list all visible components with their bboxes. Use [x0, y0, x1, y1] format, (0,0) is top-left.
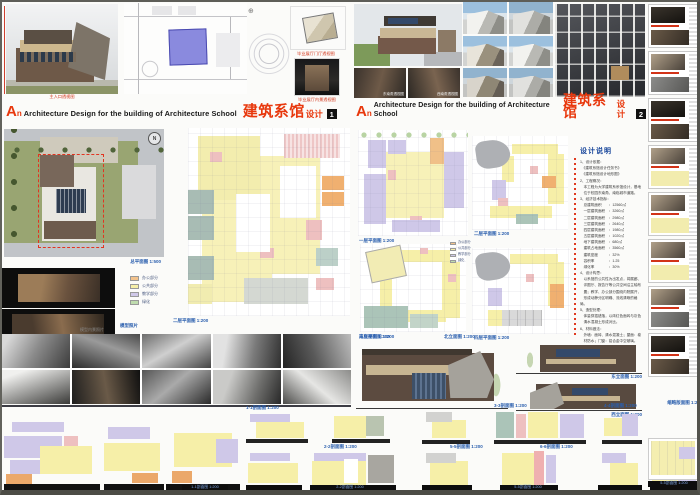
legend-row: 绿化 — [130, 298, 158, 306]
plan-c-caption: 二层平面图 1:200 — [474, 232, 509, 237]
mini-board-thumb — [648, 98, 700, 142]
legend-swatch — [450, 254, 456, 257]
section-caption: 1-1剖面图 1:200 — [246, 406, 279, 411]
legend-label: 公共部分 — [458, 247, 471, 250]
entrance-hall-axon-thumb — [290, 6, 346, 50]
bw-photo — [283, 334, 351, 368]
fragment-label-text: 5-5剖面图 1:200 — [660, 482, 687, 486]
elevation-drawing-south — [356, 343, 508, 409]
elevation-caption: 北立面图 1:200 — [444, 335, 475, 340]
design-notes: 设计说明 1、设计依据： 《建筑系馆设计任务书》 《建筑系馆设计地形图》 2、工… — [580, 146, 642, 338]
mini-board-thumb — [648, 145, 700, 189]
section-drawing — [494, 410, 586, 444]
title-letter-a: A — [6, 106, 17, 119]
detail-render: 西南角透视图 — [408, 68, 460, 98]
detail-render: 东南角透视图 — [354, 68, 406, 98]
section-drawing — [332, 412, 390, 443]
legend-swatch — [450, 260, 456, 263]
model-photo — [2, 268, 115, 308]
render-tile — [463, 36, 507, 66]
legend-swatch — [450, 248, 456, 251]
entrance-hall-photo-thumb — [294, 58, 340, 96]
floor-plan-level2 — [472, 136, 568, 230]
legend-label: 办公部分 — [142, 276, 158, 280]
legend-swatch — [450, 242, 456, 245]
bw-photo — [2, 334, 70, 368]
building-dashed-outline — [38, 154, 104, 248]
mini-board-thumb — [648, 51, 700, 95]
detail-render-caption: 东南角透视图 — [383, 93, 404, 97]
notes-body: 1、设计依据： 《建筑系馆设计任务书》 《建筑系馆设计地形图》 2、工程概况： … — [580, 159, 642, 344]
elevation-caption: 南立面图 1:200 — [359, 335, 390, 340]
section-drawing — [602, 410, 642, 444]
title-english: Architecture Design for the building of … — [24, 109, 237, 119]
sidebar-caption: 缩略版面图 1:25 — [652, 401, 700, 406]
legend-swatch — [130, 300, 139, 305]
bw-model-photo-grid — [2, 334, 351, 404]
section-caption: 3-3剖面图 1:200 — [494, 404, 527, 409]
section-drawing — [246, 451, 302, 492]
render-tile — [463, 2, 507, 34]
section-drawing — [598, 451, 642, 492]
compass-icon: ⊕ — [248, 8, 254, 15]
notes-title: 设计说明 — [580, 146, 642, 156]
section-ground-label: 1-1剖面图 1:200 — [182, 485, 228, 491]
detail-render-caption: 西南角透视图 — [437, 93, 458, 97]
title-chinese-sub: 设计 — [306, 109, 323, 119]
title-letter-a: A — [356, 106, 367, 119]
title-letter-n: n — [17, 109, 22, 119]
bw-photo — [213, 370, 281, 404]
legend-label: 绿化 — [142, 300, 150, 304]
legend-label: 教学部分 — [458, 253, 471, 256]
section-ground-label: 2-2剖面图 1:200 — [324, 485, 376, 491]
floor-plan-level1 — [358, 130, 468, 236]
ground-label-text: 5-5剖面图 1:200 — [514, 486, 541, 490]
title-letter-n: n — [367, 109, 372, 119]
section-drawing — [422, 451, 472, 492]
presentation-board: 主入口透视图 ⊕ 毕业展厅门厅透视图 毕业展厅内景透视图 A n Archite… — [0, 0, 700, 495]
mini-board-thumb — [648, 239, 700, 283]
section-drawing — [104, 425, 164, 492]
ground-label-text: 2-2剖面图 1:200 — [336, 486, 363, 490]
elevation-caption: 东立面图 1:200 — [598, 375, 642, 380]
panel1-title: A n Architecture Design for the building… — [6, 102, 350, 119]
legend-row: 教学部分 — [130, 290, 158, 298]
legend-row: 办公部分 — [130, 274, 158, 282]
bw-photo — [72, 370, 140, 404]
title-chinese-sub: 设计 — [617, 99, 632, 119]
panel-number-badge: 2 — [636, 109, 646, 119]
atrium-interior-render — [555, 4, 645, 97]
red-dotted-divider — [574, 158, 576, 338]
thumb-a-caption: 毕业展厅门厅透视图 — [282, 52, 350, 56]
plan-color-legend: 办公部分 公共部分 教学部分 绿化 — [130, 274, 158, 306]
aerial-caption: 总平面图 1:500 — [97, 260, 161, 265]
mini-board-thumb — [648, 4, 700, 48]
site-footprint — [168, 28, 207, 65]
render-tile — [463, 68, 507, 97]
elevation-drawing-east — [516, 339, 642, 374]
section-drawing — [4, 420, 100, 492]
legend-label: 办公部分 — [458, 241, 471, 244]
plan-d-caption: 四层平面图 1:200 — [474, 336, 509, 341]
legend-row: 绿化 — [450, 258, 471, 264]
title-chinese: 建筑系馆 — [563, 95, 616, 119]
plan-color-legend-small: 办公部分 公共部分 教学部分 绿化 — [450, 240, 471, 264]
render-tile — [509, 2, 553, 34]
circulation-analysis-diagram — [248, 12, 290, 88]
section-drawing — [166, 429, 240, 492]
legend-label: 教学部分 — [142, 292, 158, 296]
bw-photo — [283, 370, 351, 404]
bw-photos-caption: 模型内景照片 — [52, 328, 132, 332]
plan-fragment — [648, 438, 700, 480]
bw-photo — [142, 334, 210, 368]
decor-red-line — [4, 6, 5, 94]
main-floor-plan — [188, 128, 350, 316]
north-arrow-icon: N — [148, 132, 161, 145]
render-tile — [509, 36, 553, 66]
aerial-render — [354, 4, 462, 66]
legend-swatch — [130, 292, 139, 297]
fragment-label: 5-5剖面图 1:200 — [648, 481, 700, 487]
section-ground-label: 5-5剖面图 1:200 — [502, 485, 554, 491]
panel-number-badge: 1 — [327, 109, 337, 119]
bw-photo — [213, 334, 281, 368]
title-english: Architecture Design for the building of … — [374, 101, 557, 119]
legend-swatch — [130, 284, 139, 289]
title-chinese: 建筑系馆 — [243, 106, 305, 119]
ground-label-text: 1-1剖面图 1:200 — [191, 486, 218, 490]
bw-photo — [72, 334, 140, 368]
bw-photo — [142, 370, 210, 404]
legend-label: 公共部分 — [142, 284, 158, 288]
hero-caption: 主入口透视图 — [6, 95, 118, 99]
section-caption: 5-5剖面图 1:200 — [450, 445, 483, 450]
mini-board-thumb — [648, 192, 700, 236]
panel2-title: A n Architecture Design for the building… — [356, 102, 646, 119]
section-caption: 4-4剖面图 1:200 — [604, 404, 637, 409]
section-drawing — [246, 412, 308, 443]
section-caption: 2-2剖面图 1:200 — [324, 445, 357, 450]
floor-plan-level4 — [472, 248, 570, 334]
plan-a-caption: 一层平面图 1:200 — [359, 239, 394, 244]
main-plan-caption: 二层平面图 1:200 — [173, 319, 208, 324]
divider-line — [2, 405, 351, 407]
mini-board-thumb — [648, 286, 700, 330]
mini-board-thumb — [648, 333, 700, 377]
section-drawing — [422, 410, 470, 444]
legend-row: 公共部分 — [130, 282, 158, 290]
render-tile — [509, 68, 553, 97]
legend-label: 绿化 — [458, 259, 464, 262]
bw-photo — [2, 370, 70, 404]
legend-swatch — [130, 276, 139, 281]
hero-perspective-render — [6, 4, 118, 94]
